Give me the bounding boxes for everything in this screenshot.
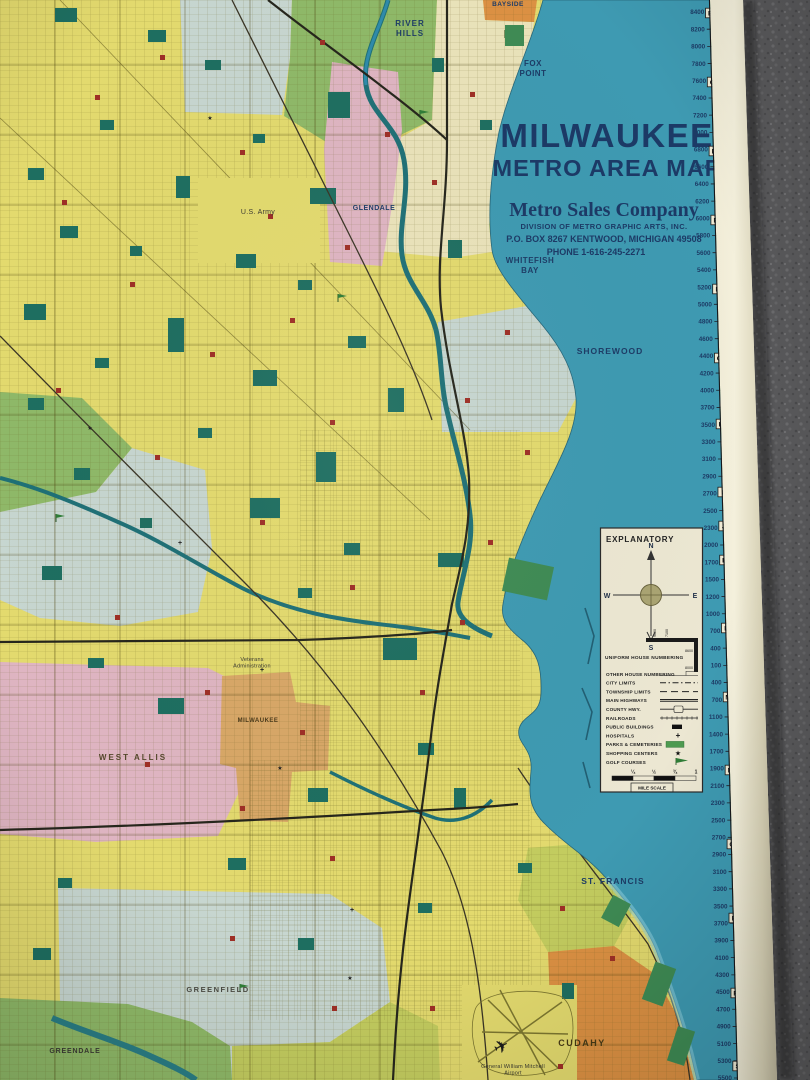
map-photo: ✈ ★★★★+++ MILWAUKEE METRO AREA MAP Metro… — [0, 0, 810, 1080]
screenshot-root: { "title_block": { "city": "MILWAUKEE", … — [0, 0, 810, 1080]
photo-vignette — [0, 0, 810, 1080]
